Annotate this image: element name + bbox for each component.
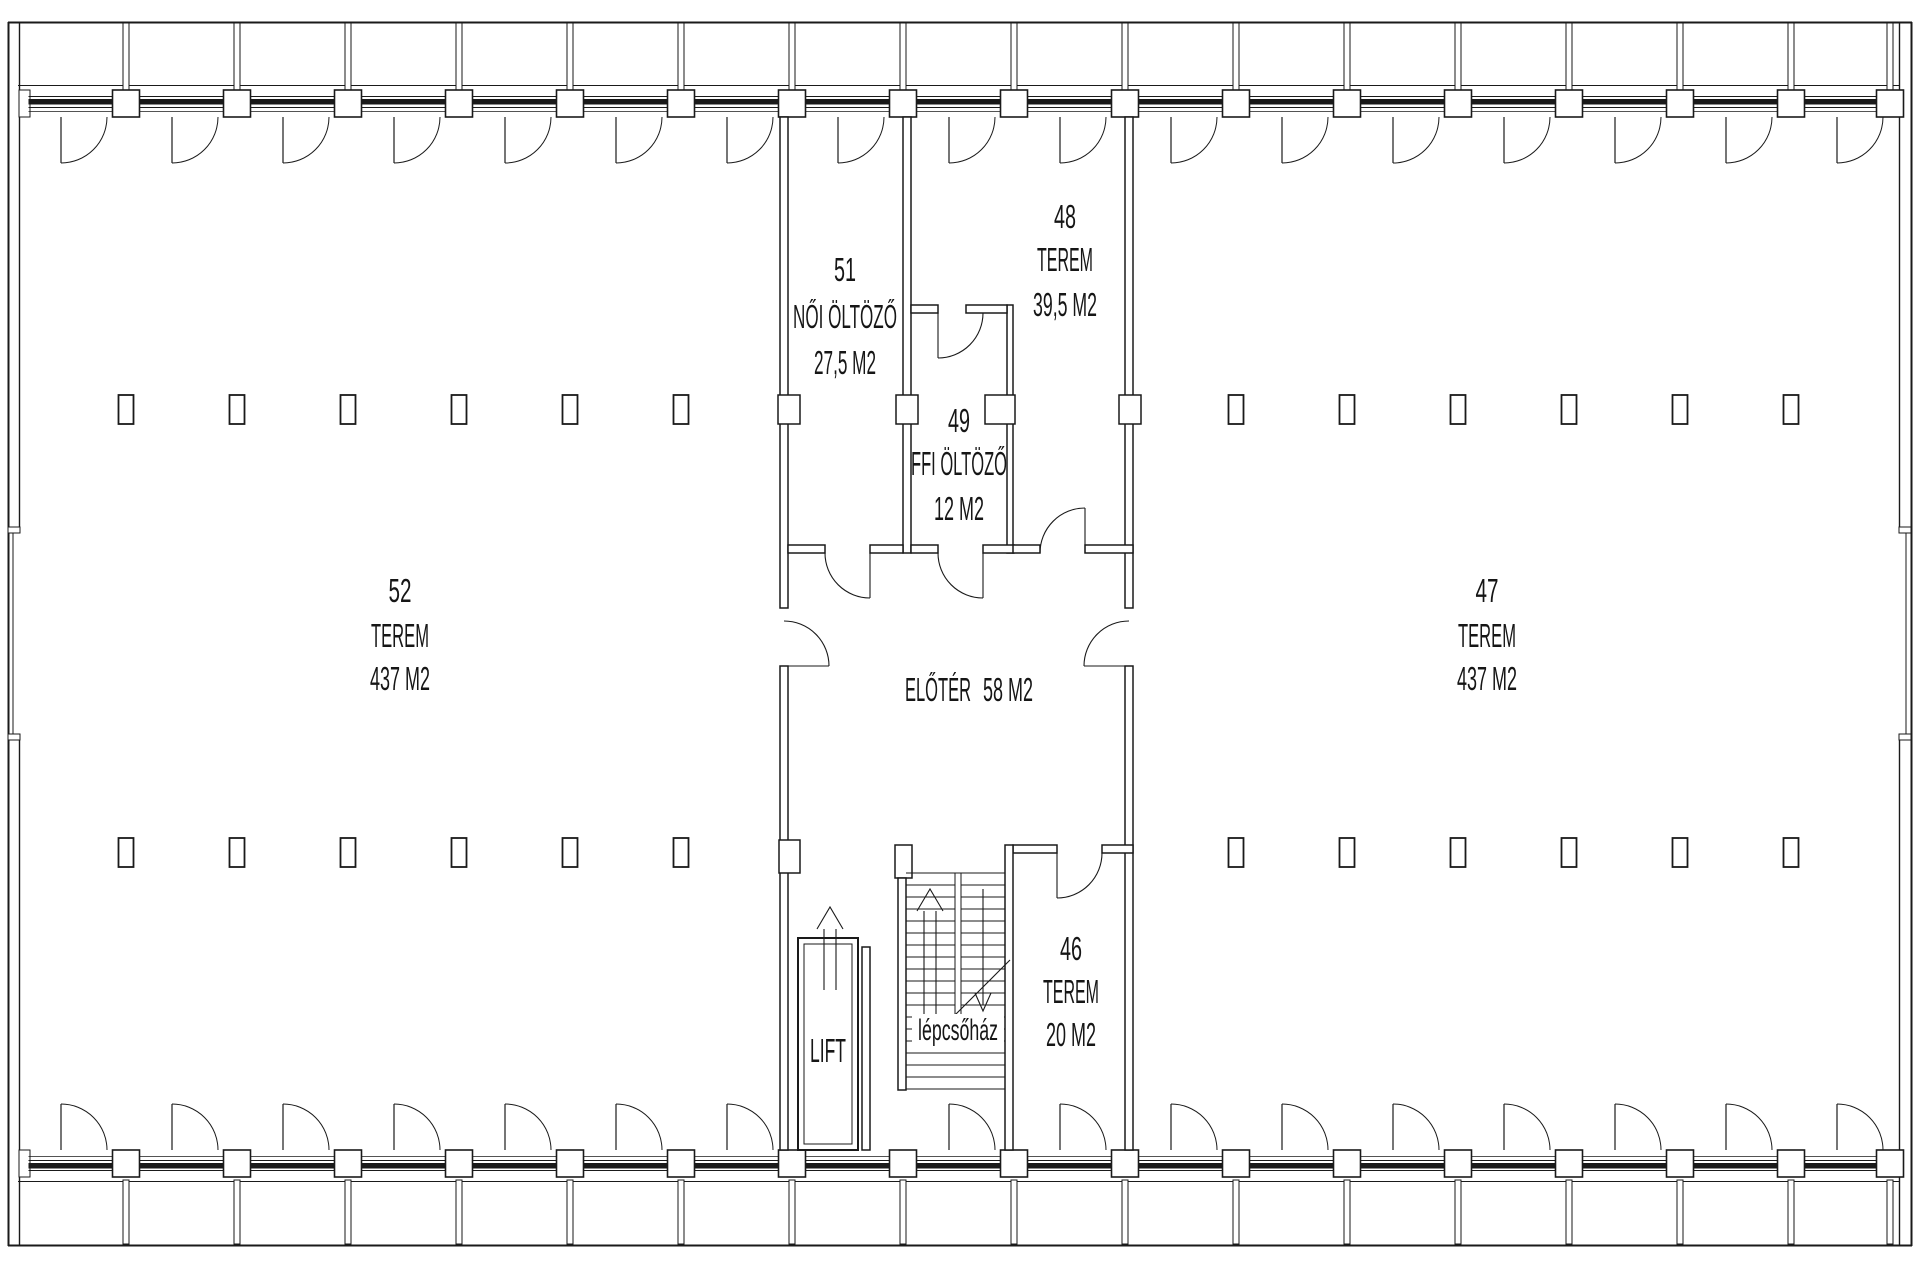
core-left-wall-lower — [780, 666, 788, 1150]
stair-left-wall — [898, 878, 906, 1090]
room-46-type: TEREM — [1043, 973, 1099, 1010]
room-46-number: 46 — [1060, 930, 1082, 967]
room-47-number: 47 — [1476, 572, 1499, 609]
door-room51 — [825, 553, 870, 598]
room-49-number: 49 — [948, 402, 970, 439]
room-51-number: 51 — [834, 251, 856, 288]
foyer-area: 58 M2 — [983, 671, 1033, 708]
room-47-area: 437 M2 — [1457, 660, 1517, 697]
outer-wall-right — [1899, 22, 1912, 1246]
room-46-label: 46 TEREM 20 M2 — [1043, 930, 1099, 1053]
room-51-type: NŐI ÖLTÖZŐ — [793, 298, 897, 335]
floor-plan-drawing: 52 TEREM 437 M2 47 TEREM 437 M2 51 NŐI Ö… — [0, 0, 1920, 1280]
stairwell-label: lépcsőház — [918, 1014, 998, 1047]
core-left-wall-upper — [780, 117, 788, 608]
wall-49-right — [1007, 305, 1013, 553]
door-foyer-right — [1084, 621, 1129, 666]
room-47-type: TEREM — [1458, 617, 1516, 654]
lift-shaft — [798, 907, 870, 1150]
lift-label: LIFT — [810, 1032, 846, 1069]
room-52-label: 52 TEREM 437 M2 — [370, 572, 430, 697]
room-52-area: 437 M2 — [370, 660, 430, 697]
room-47-label: 47 TEREM 437 M2 — [1457, 572, 1517, 697]
bottom-facade — [18, 1104, 1904, 1244]
room-48-label: 48 TEREM 39,5 M2 — [1033, 198, 1097, 323]
foyer-name: ELŐTÉR — [905, 671, 971, 708]
core-right-wall-lower — [1125, 666, 1133, 1150]
room-48-area: 39,5 M2 — [1033, 286, 1097, 323]
door-room49-top — [938, 313, 983, 358]
outer-walls — [8, 22, 1912, 1246]
door-room46 — [1057, 853, 1102, 898]
room-48-number: 48 — [1054, 198, 1076, 235]
door-foyer-left — [784, 621, 829, 666]
room-49-area: 12 M2 — [934, 490, 984, 527]
outer-wall-left — [8, 22, 30, 1246]
wall-51-48 — [903, 117, 911, 553]
room-48-type: TEREM — [1037, 241, 1093, 278]
door-room48 — [1040, 508, 1085, 553]
room-labels: 52 TEREM 437 M2 47 TEREM 437 M2 51 NŐI Ö… — [370, 198, 1517, 1069]
room-51-area: 27,5 M2 — [814, 344, 876, 381]
floor-plan: 52 TEREM 437 M2 47 TEREM 437 M2 51 NŐI Ö… — [0, 0, 1920, 1280]
foyer-label: ELŐTÉR 58 M2 — [905, 671, 1033, 708]
room-52-number: 52 — [389, 572, 412, 609]
room-52-type: TEREM — [371, 617, 429, 654]
door-room49-bottom — [938, 553, 983, 598]
top-facade — [18, 23, 1904, 163]
stair-right-wall — [1005, 845, 1013, 1150]
core-right-wall-upper — [1125, 117, 1133, 608]
room-46-area: 20 M2 — [1046, 1016, 1096, 1053]
interior-doors — [784, 313, 1129, 898]
room-51-label: 51 NŐI ÖLTÖZŐ 27,5 M2 — [793, 251, 897, 381]
room-49-type: FFI ÖLTÖZŐ — [911, 445, 1007, 482]
